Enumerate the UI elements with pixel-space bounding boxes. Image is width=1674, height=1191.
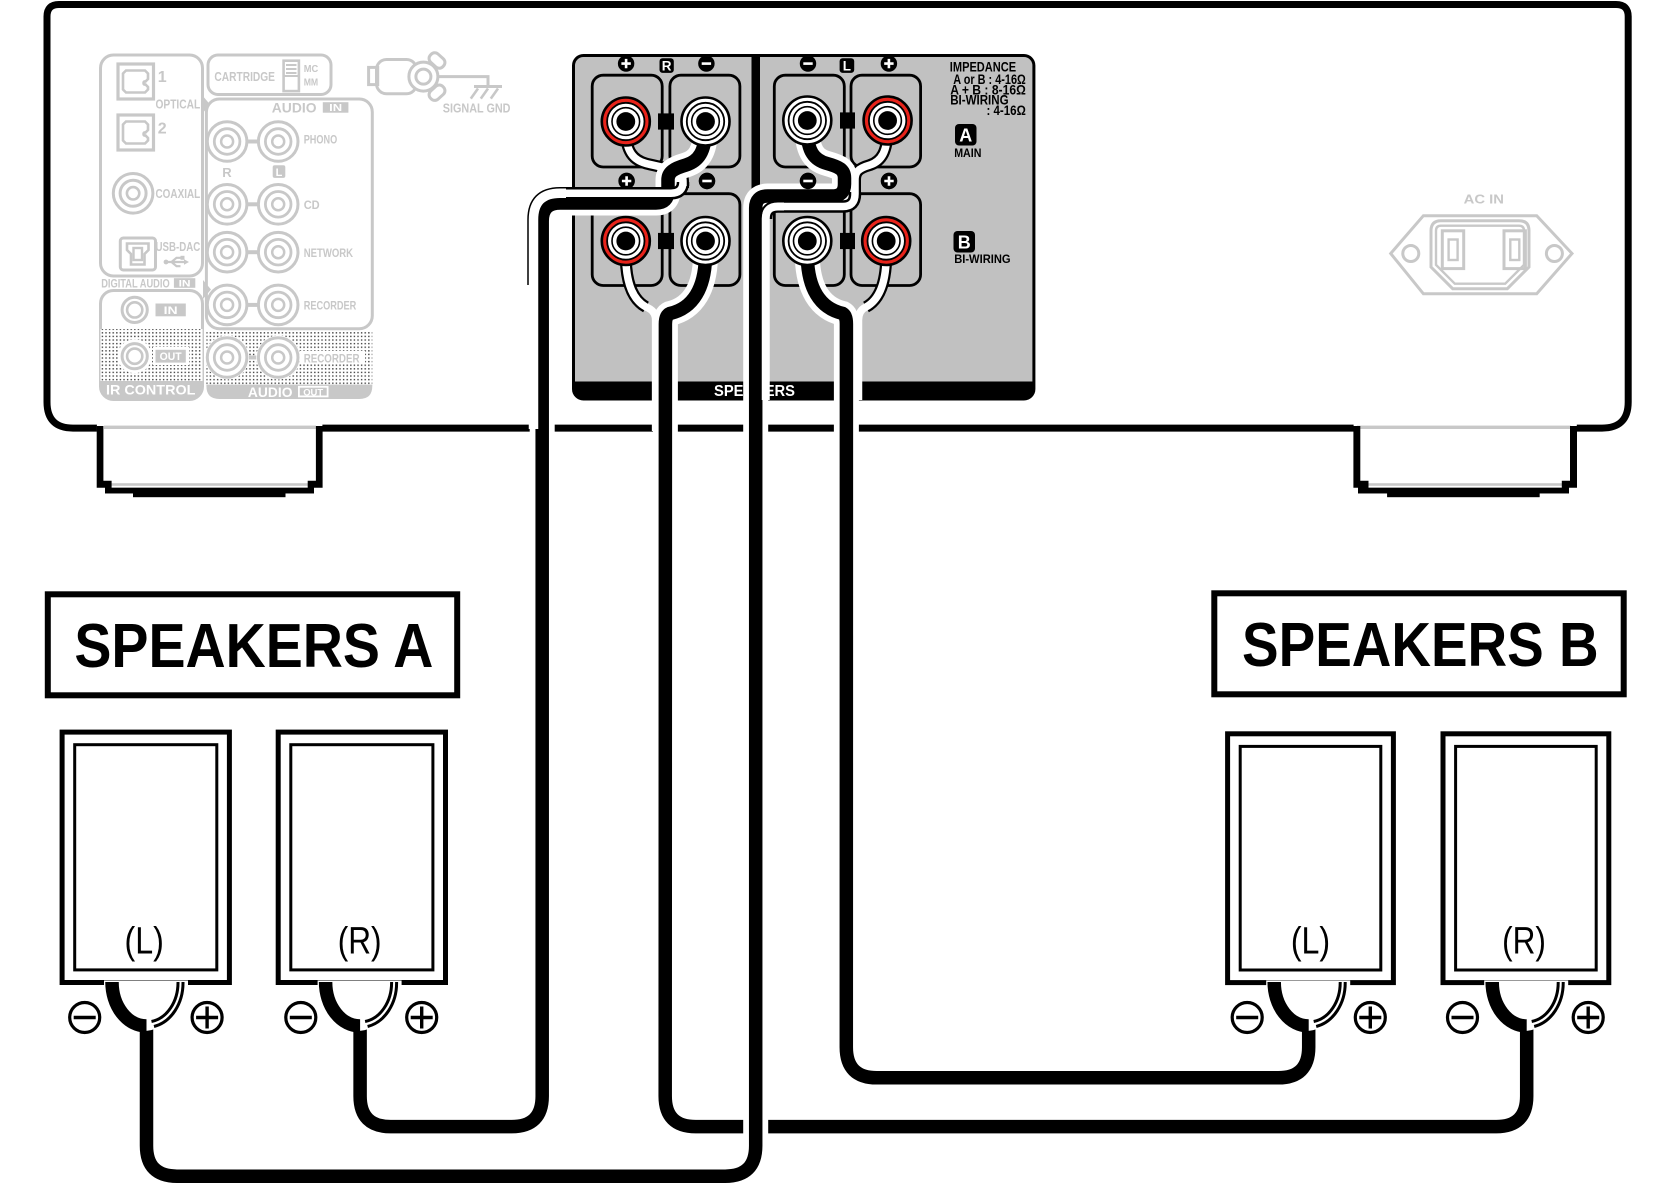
svg-text:2: 2 — [158, 121, 167, 138]
svg-text:1: 1 — [158, 69, 167, 86]
svg-text:NETWORK: NETWORK — [304, 246, 354, 260]
svg-text:PHONO: PHONO — [304, 133, 338, 147]
svg-text:IN: IN — [329, 103, 342, 114]
svg-text:RECORDER: RECORDER — [304, 351, 360, 365]
svg-text:OPTICAL: OPTICAL — [156, 98, 201, 112]
svg-text:(L): (L) — [125, 921, 164, 963]
svg-text:AUDIO: AUDIO — [272, 100, 317, 116]
svg-text:: 4-16Ω: : 4-16Ω — [987, 103, 1026, 118]
svg-text:MM: MM — [304, 76, 319, 88]
svg-text:BI-WIRING: BI-WIRING — [954, 252, 1010, 266]
svg-text:(R): (R) — [1502, 921, 1546, 963]
svg-text:MC: MC — [304, 63, 319, 75]
svg-text:SPEAKERS B: SPEAKERS B — [1242, 610, 1599, 680]
svg-text:A: A — [959, 126, 972, 146]
svg-text:USB-DAC: USB-DAC — [156, 240, 201, 254]
svg-text:AUDIO: AUDIO — [248, 384, 293, 400]
svg-text:IN: IN — [179, 278, 191, 289]
svg-text:(R): (R) — [338, 921, 382, 963]
svg-text:DIGITAL AUDIO: DIGITAL AUDIO — [101, 276, 170, 290]
svg-text:IR CONTROL: IR CONTROL — [106, 381, 196, 397]
svg-text:COAXIAL: COAXIAL — [156, 187, 201, 201]
svg-text:AC IN: AC IN — [1464, 191, 1504, 206]
svg-text:B: B — [958, 233, 971, 253]
svg-text:R: R — [662, 58, 672, 73]
svg-text:MAIN: MAIN — [954, 146, 981, 160]
svg-text:L: L — [843, 58, 851, 73]
svg-text:IN: IN — [164, 305, 178, 317]
svg-text:R: R — [222, 165, 232, 180]
svg-text:OUT: OUT — [303, 387, 323, 398]
svg-text:RECORDER: RECORDER — [304, 299, 357, 313]
svg-text:CARTRIDGE: CARTRIDGE — [214, 70, 275, 84]
svg-text:SPEAKERS A: SPEAKERS A — [74, 611, 433, 681]
svg-text:L: L — [276, 167, 283, 179]
svg-text:OUT: OUT — [160, 351, 182, 363]
svg-text:CD: CD — [304, 198, 320, 212]
svg-text:SIGNAL GND: SIGNAL GND — [443, 101, 511, 116]
svg-text:(L): (L) — [1291, 921, 1330, 963]
